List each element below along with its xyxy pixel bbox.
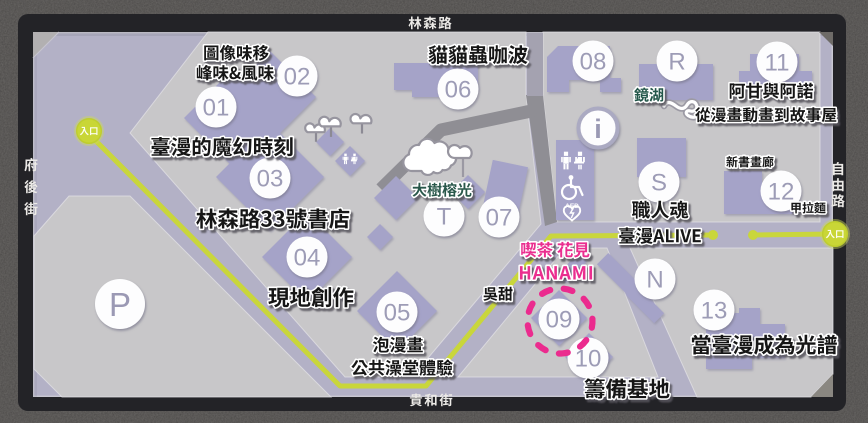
svg-text:13: 13: [701, 298, 728, 325]
svg-text:08: 08: [580, 49, 607, 76]
svg-text:S: S: [651, 170, 667, 197]
svg-text:10: 10: [575, 346, 602, 373]
svg-text:T: T: [437, 204, 452, 231]
svg-text:02: 02: [284, 64, 311, 91]
svg-text:i: i: [594, 114, 602, 144]
svg-text:12: 12: [768, 179, 795, 206]
svg-text:01: 01: [203, 95, 230, 122]
svg-text:R: R: [668, 49, 685, 76]
svg-text:N: N: [646, 267, 663, 294]
svg-text:04: 04: [294, 245, 321, 272]
svg-text:P: P: [109, 286, 131, 323]
svg-text:11: 11: [765, 50, 790, 77]
svg-text:06: 06: [445, 77, 472, 104]
svg-text:03: 03: [257, 166, 284, 193]
svg-text:07: 07: [486, 205, 513, 232]
svg-text:09: 09: [546, 307, 573, 334]
svg-text:05: 05: [384, 300, 411, 327]
